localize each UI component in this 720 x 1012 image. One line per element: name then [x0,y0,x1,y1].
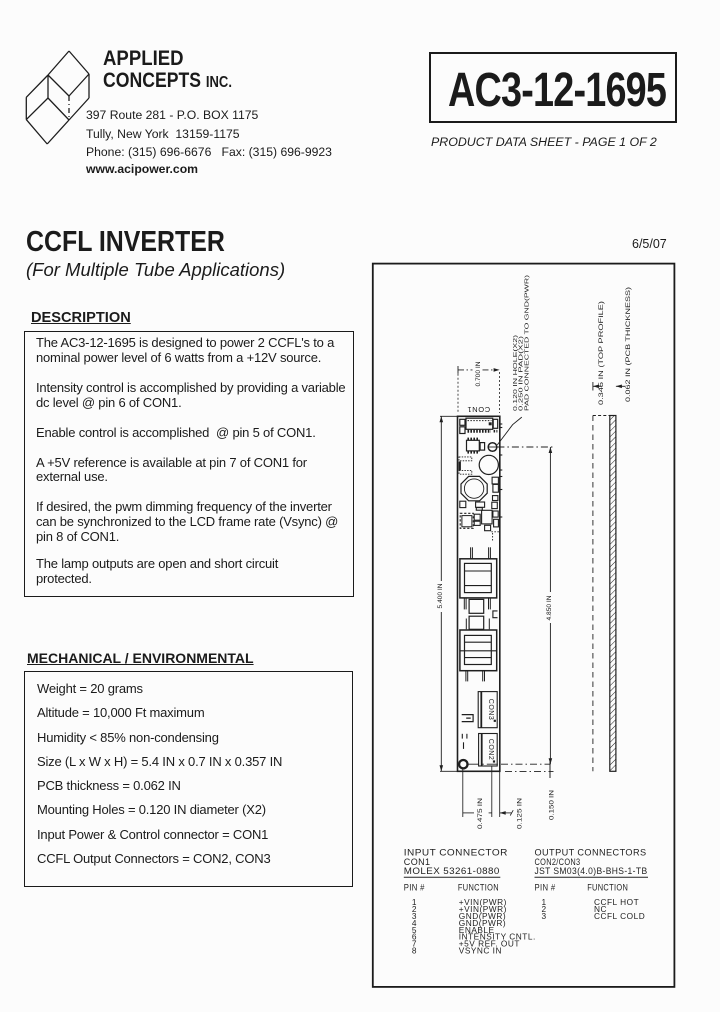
svg-text:8: 8 [412,946,417,956]
svg-text:MOLEX 53261-0880: MOLEX 53261-0880 [404,866,500,876]
svg-text:0.700 IN: 0.700 IN [475,361,482,386]
svg-text:3: 3 [542,911,547,921]
svg-text:CCFL COLD: CCFL COLD [594,911,645,921]
svg-text:0.345 IN (TOP PROFILE): 0.345 IN (TOP PROFILE) [598,301,605,405]
svg-text:PIN #: PIN # [535,883,556,893]
svg-text:PAD CONNECTED TO GND(PWR): PAD CONNECTED TO GND(PWR) [524,275,530,411]
svg-text:PIN #: PIN # [404,883,425,893]
svg-text:FUNCTION: FUNCTION [458,883,499,893]
svg-text:0.062 IN (PCB THICKNESS): 0.062 IN (PCB THICKNESS) [625,287,632,402]
svg-text:JST SM03(4.0)B-BHS-1-TB: JST SM03(4.0)B-BHS-1-TB [535,866,648,876]
svg-text:0.150 IN: 0.150 IN [549,790,556,820]
svg-text:CON2: CON2 [487,739,494,760]
svg-text:CON1: CON1 [467,405,490,414]
svg-text:FUNCTION: FUNCTION [587,883,628,893]
svg-text:CON3: CON3 [487,699,494,720]
svg-text:4.850 IN: 4.850 IN [546,595,553,620]
svg-text:VSYNC IN: VSYNC IN [459,946,502,956]
svg-text:0.125 IN: 0.125 IN [516,798,523,829]
svg-text:0.475 IN: 0.475 IN [477,798,484,829]
svg-text:5.400 IN: 5.400 IN [437,583,444,608]
